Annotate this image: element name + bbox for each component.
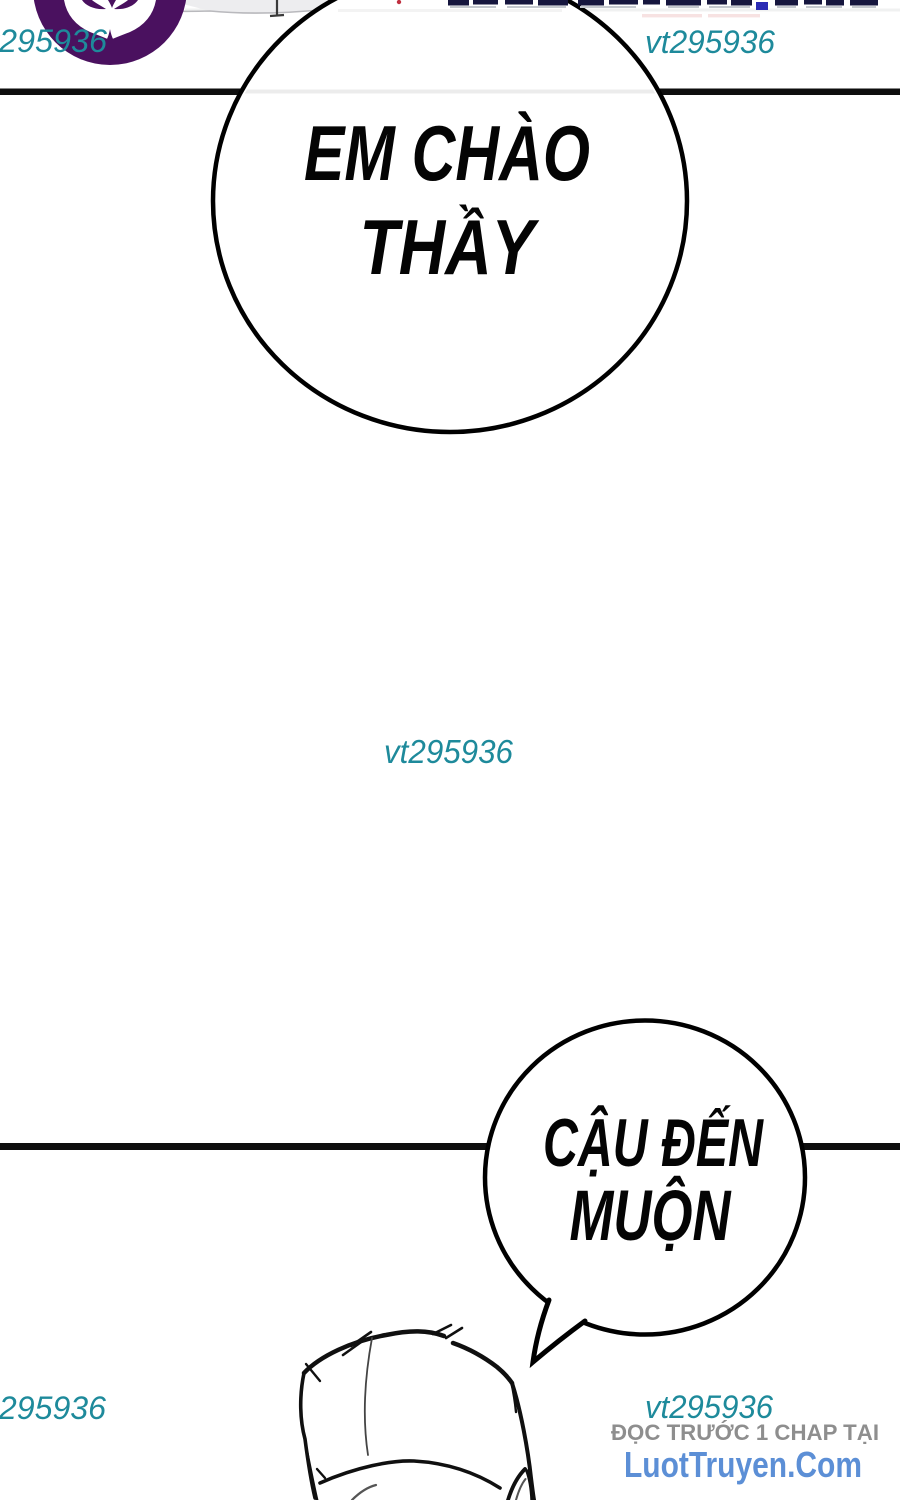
- svg-text:THẦY: THẦY: [360, 203, 540, 291]
- svg-text:EM CHÀO: EM CHÀO: [304, 109, 590, 197]
- svg-text:t295936: t295936: [0, 23, 107, 59]
- svg-text:MUỘN: MUỘN: [570, 1176, 732, 1256]
- svg-text:vt295936: vt295936: [645, 24, 775, 60]
- svg-text:t295936: t295936: [0, 1390, 106, 1426]
- svg-text:vt295936: vt295936: [384, 733, 514, 770]
- svg-text:ĐỌC TRƯỚC 1 CHAP TẠI: ĐỌC TRƯỚC 1 CHAP TẠI: [611, 1420, 879, 1445]
- svg-text:CẬU ĐẾN: CẬU ĐẾN: [543, 1104, 764, 1181]
- svg-text:LuotTruyen.Com: LuotTruyen.Com: [624, 1444, 862, 1485]
